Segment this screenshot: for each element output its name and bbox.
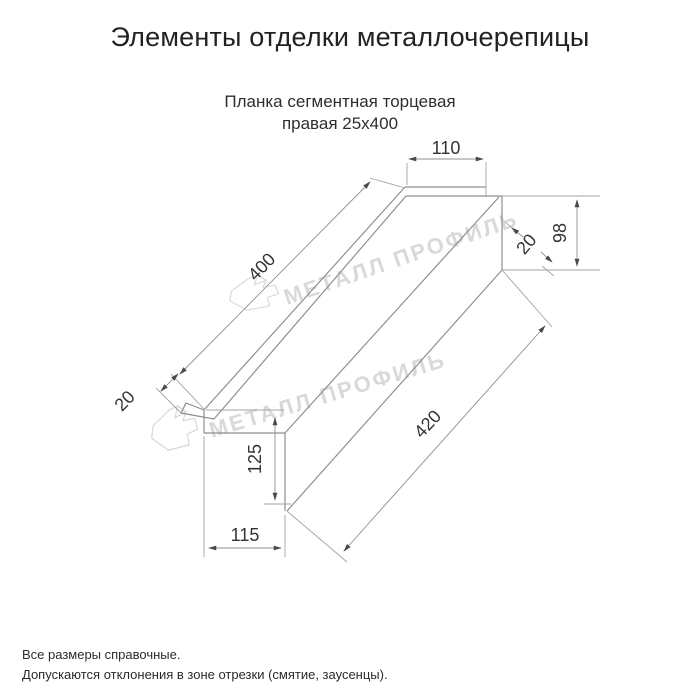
watermark-brand-text: МЕТАЛЛ ПРОФИЛЬ [280,206,521,310]
footer-notes: Все размеры справочные. Допускаются откл… [22,645,388,684]
footer-note-1: Все размеры справочные. [22,645,388,665]
dim-line-20-left [161,374,178,391]
footer-note-2: Допускаются отклонения в зоне отрезки (с… [22,665,388,685]
dim-end-height: 98 [550,223,570,243]
dim-bottom-width: 115 [231,525,260,545]
dim-top-flange-width: 110 [432,138,461,158]
technical-drawing: МЕТАЛЛ ПРОФИЛЬ МЕТАЛЛ ПРОФИЛЬ [0,0,700,700]
watermark-lower: МЕТАЛЛ ПРОФИЛЬ [152,347,449,450]
dimension-labels: 110 98 20 400 20 125 115 420 [111,138,570,545]
dim-line-20-right-b [541,252,552,262]
dim-end-hem: 20 [512,230,540,258]
dim-face-height: 125 [245,444,265,474]
edge-mid-long [285,197,499,433]
dim-left-hem: 20 [111,387,139,415]
metall-profil-logo-icon [152,406,198,450]
extension-lines [156,162,600,562]
dim-bottom-length: 420 [410,406,445,442]
